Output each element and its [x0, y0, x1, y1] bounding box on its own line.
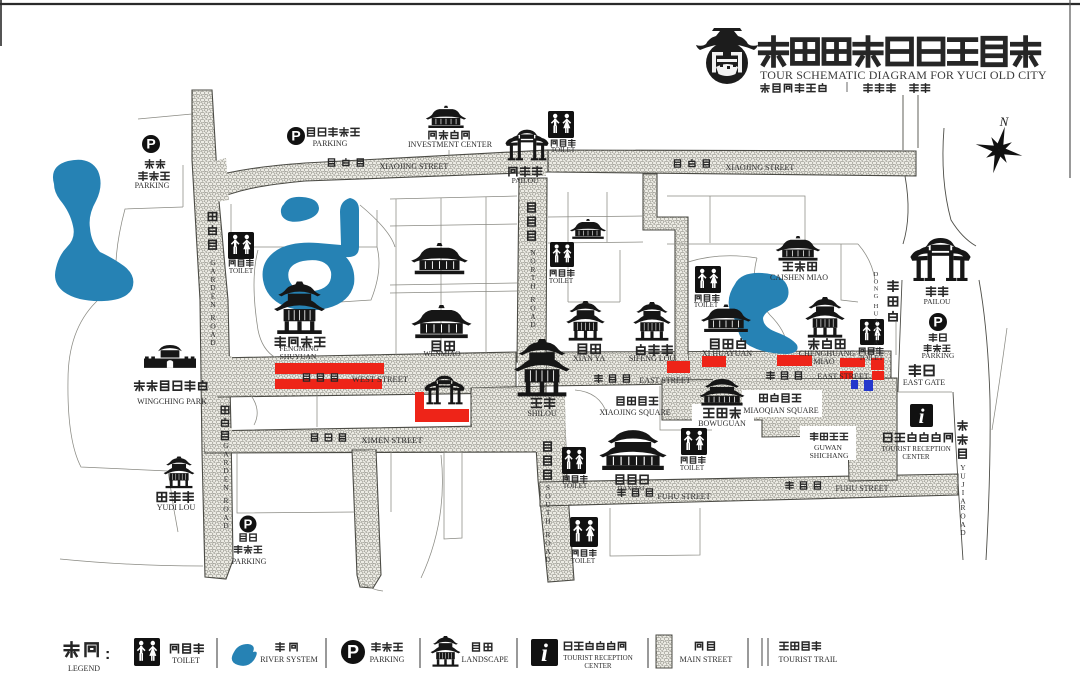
svg-text:N: N [210, 300, 216, 309]
svg-text:XIAOJING SQUARE: XIAOJING SQUARE [599, 408, 670, 417]
svg-text:FUHU STREET: FUHU STREET [657, 492, 710, 501]
svg-text:H: H [874, 303, 879, 310]
svg-text:N: N [999, 114, 1010, 129]
svg-text:TOILET: TOILET [571, 557, 596, 565]
svg-text:TOILET: TOILET [694, 301, 719, 309]
svg-text:XIAOJING STREET: XIAOJING STREET [380, 162, 449, 171]
svg-text:SHILOU: SHILOU [527, 409, 557, 418]
svg-text:MIAOQIAN SQUARE: MIAOQIAN SQUARE [743, 406, 818, 415]
svg-text:YUDI LOU: YUDI LOU [157, 503, 196, 512]
svg-text:PARKING: PARKING [135, 181, 170, 190]
svg-text:P: P [933, 314, 942, 330]
svg-text:D: D [545, 555, 551, 564]
svg-text:D: D [874, 271, 879, 278]
svg-text:TOILET: TOILET [229, 267, 254, 275]
svg-text:EAST STREET: EAST STREET [817, 372, 868, 381]
svg-text:TOILET: TOILET [563, 482, 588, 490]
svg-text:i: i [919, 404, 925, 428]
svg-text:LANDSCAPE: LANDSCAPE [461, 655, 508, 664]
svg-text:N: N [874, 286, 879, 293]
svg-text:WINGCHING PARK: WINGCHING PARK [137, 397, 207, 406]
svg-text:PARKING: PARKING [370, 655, 405, 664]
svg-text:TOURIST TRAIL: TOURIST TRAIL [779, 655, 838, 664]
svg-text:SHUYUAN: SHUYUAN [280, 352, 317, 361]
svg-text:PARKING: PARKING [313, 139, 348, 148]
svg-text:U: U [874, 332, 879, 339]
svg-text:CENTER: CENTER [584, 662, 612, 670]
svg-text:H: H [530, 282, 536, 291]
svg-text:A: A [874, 318, 879, 325]
svg-text:P: P [244, 516, 253, 531]
svg-text:XI HUAYUAN: XI HUAYUAN [702, 349, 752, 358]
svg-text:WEST STREET: WEST STREET [352, 374, 409, 384]
svg-text:TOILET: TOILET [172, 656, 200, 665]
svg-text:LEGEND: LEGEND [68, 664, 100, 673]
svg-text:XIMEN STREET: XIMEN STREET [361, 435, 423, 445]
svg-text:G: G [874, 293, 879, 300]
svg-text:PARKING: PARKING [922, 351, 955, 360]
svg-text:EAST STREET: EAST STREET [639, 376, 690, 385]
svg-text:Y: Y [874, 325, 879, 332]
svg-text:XIAOJING STREET: XIAOJING STREET [726, 163, 795, 172]
svg-text:TOURIST RECEPTION: TOURIST RECEPTION [881, 445, 951, 453]
svg-text:TOILET: TOILET [551, 146, 576, 154]
svg-text:CAISHEN MIAO: CAISHEN MIAO [770, 273, 828, 282]
svg-text:H: H [545, 517, 551, 526]
svg-text::: : [105, 646, 110, 663]
svg-text:SHICHANG: SHICHANG [810, 451, 849, 460]
svg-text:BOWUGUAN: BOWUGUAN [698, 419, 746, 428]
svg-text:i: i [541, 640, 548, 667]
svg-text:D: D [210, 338, 216, 347]
svg-text:WENMIAO: WENMIAO [423, 349, 461, 358]
svg-text:P: P [291, 128, 300, 144]
svg-text:TOURIST RECEPTION: TOURIST RECEPTION [563, 654, 633, 662]
svg-text:INVESTMENT CENTER: INVESTMENT CENTER [408, 140, 493, 149]
svg-text:D: D [960, 528, 966, 537]
svg-text:TOUR SCHEMATIC DIAGRAM FOR YUC: TOUR SCHEMATIC DIAGRAM FOR YUCI OLD CITY [760, 68, 1047, 82]
svg-text:D: D [530, 320, 536, 329]
svg-text:RIVER SYSTEM: RIVER SYSTEM [260, 655, 318, 664]
svg-text:PAILOU: PAILOU [924, 297, 951, 306]
svg-text:CENTER: CENTER [902, 453, 930, 461]
svg-text:D: D [223, 521, 229, 530]
svg-text:EAST GATE: EAST GATE [903, 378, 945, 387]
svg-text:TOILET: TOILET [680, 464, 705, 472]
svg-text:TOILET: TOILET [549, 277, 574, 285]
svg-text:PARKING: PARKING [232, 557, 267, 566]
svg-text:MAIN STREET: MAIN STREET [680, 655, 733, 664]
svg-text:XIAN YA: XIAN YA [573, 354, 606, 363]
svg-text:MIAO: MIAO [813, 357, 835, 366]
svg-text:A: A [874, 339, 879, 346]
svg-text:N: N [874, 347, 879, 354]
svg-text:PAILOU: PAILOU [512, 176, 539, 185]
svg-text:U: U [874, 310, 879, 317]
svg-text:P: P [146, 136, 155, 152]
svg-text:SIFENG LOU: SIFENG LOU [629, 354, 676, 363]
svg-text:O: O [874, 278, 879, 285]
svg-text:TOILET: TOILET [859, 354, 884, 362]
svg-text:N: N [223, 483, 229, 492]
svg-text:DAXITAI: DAXITAI [618, 485, 645, 492]
svg-text:P: P [347, 642, 359, 662]
svg-text:FUHU STREET: FUHU STREET [835, 484, 888, 493]
